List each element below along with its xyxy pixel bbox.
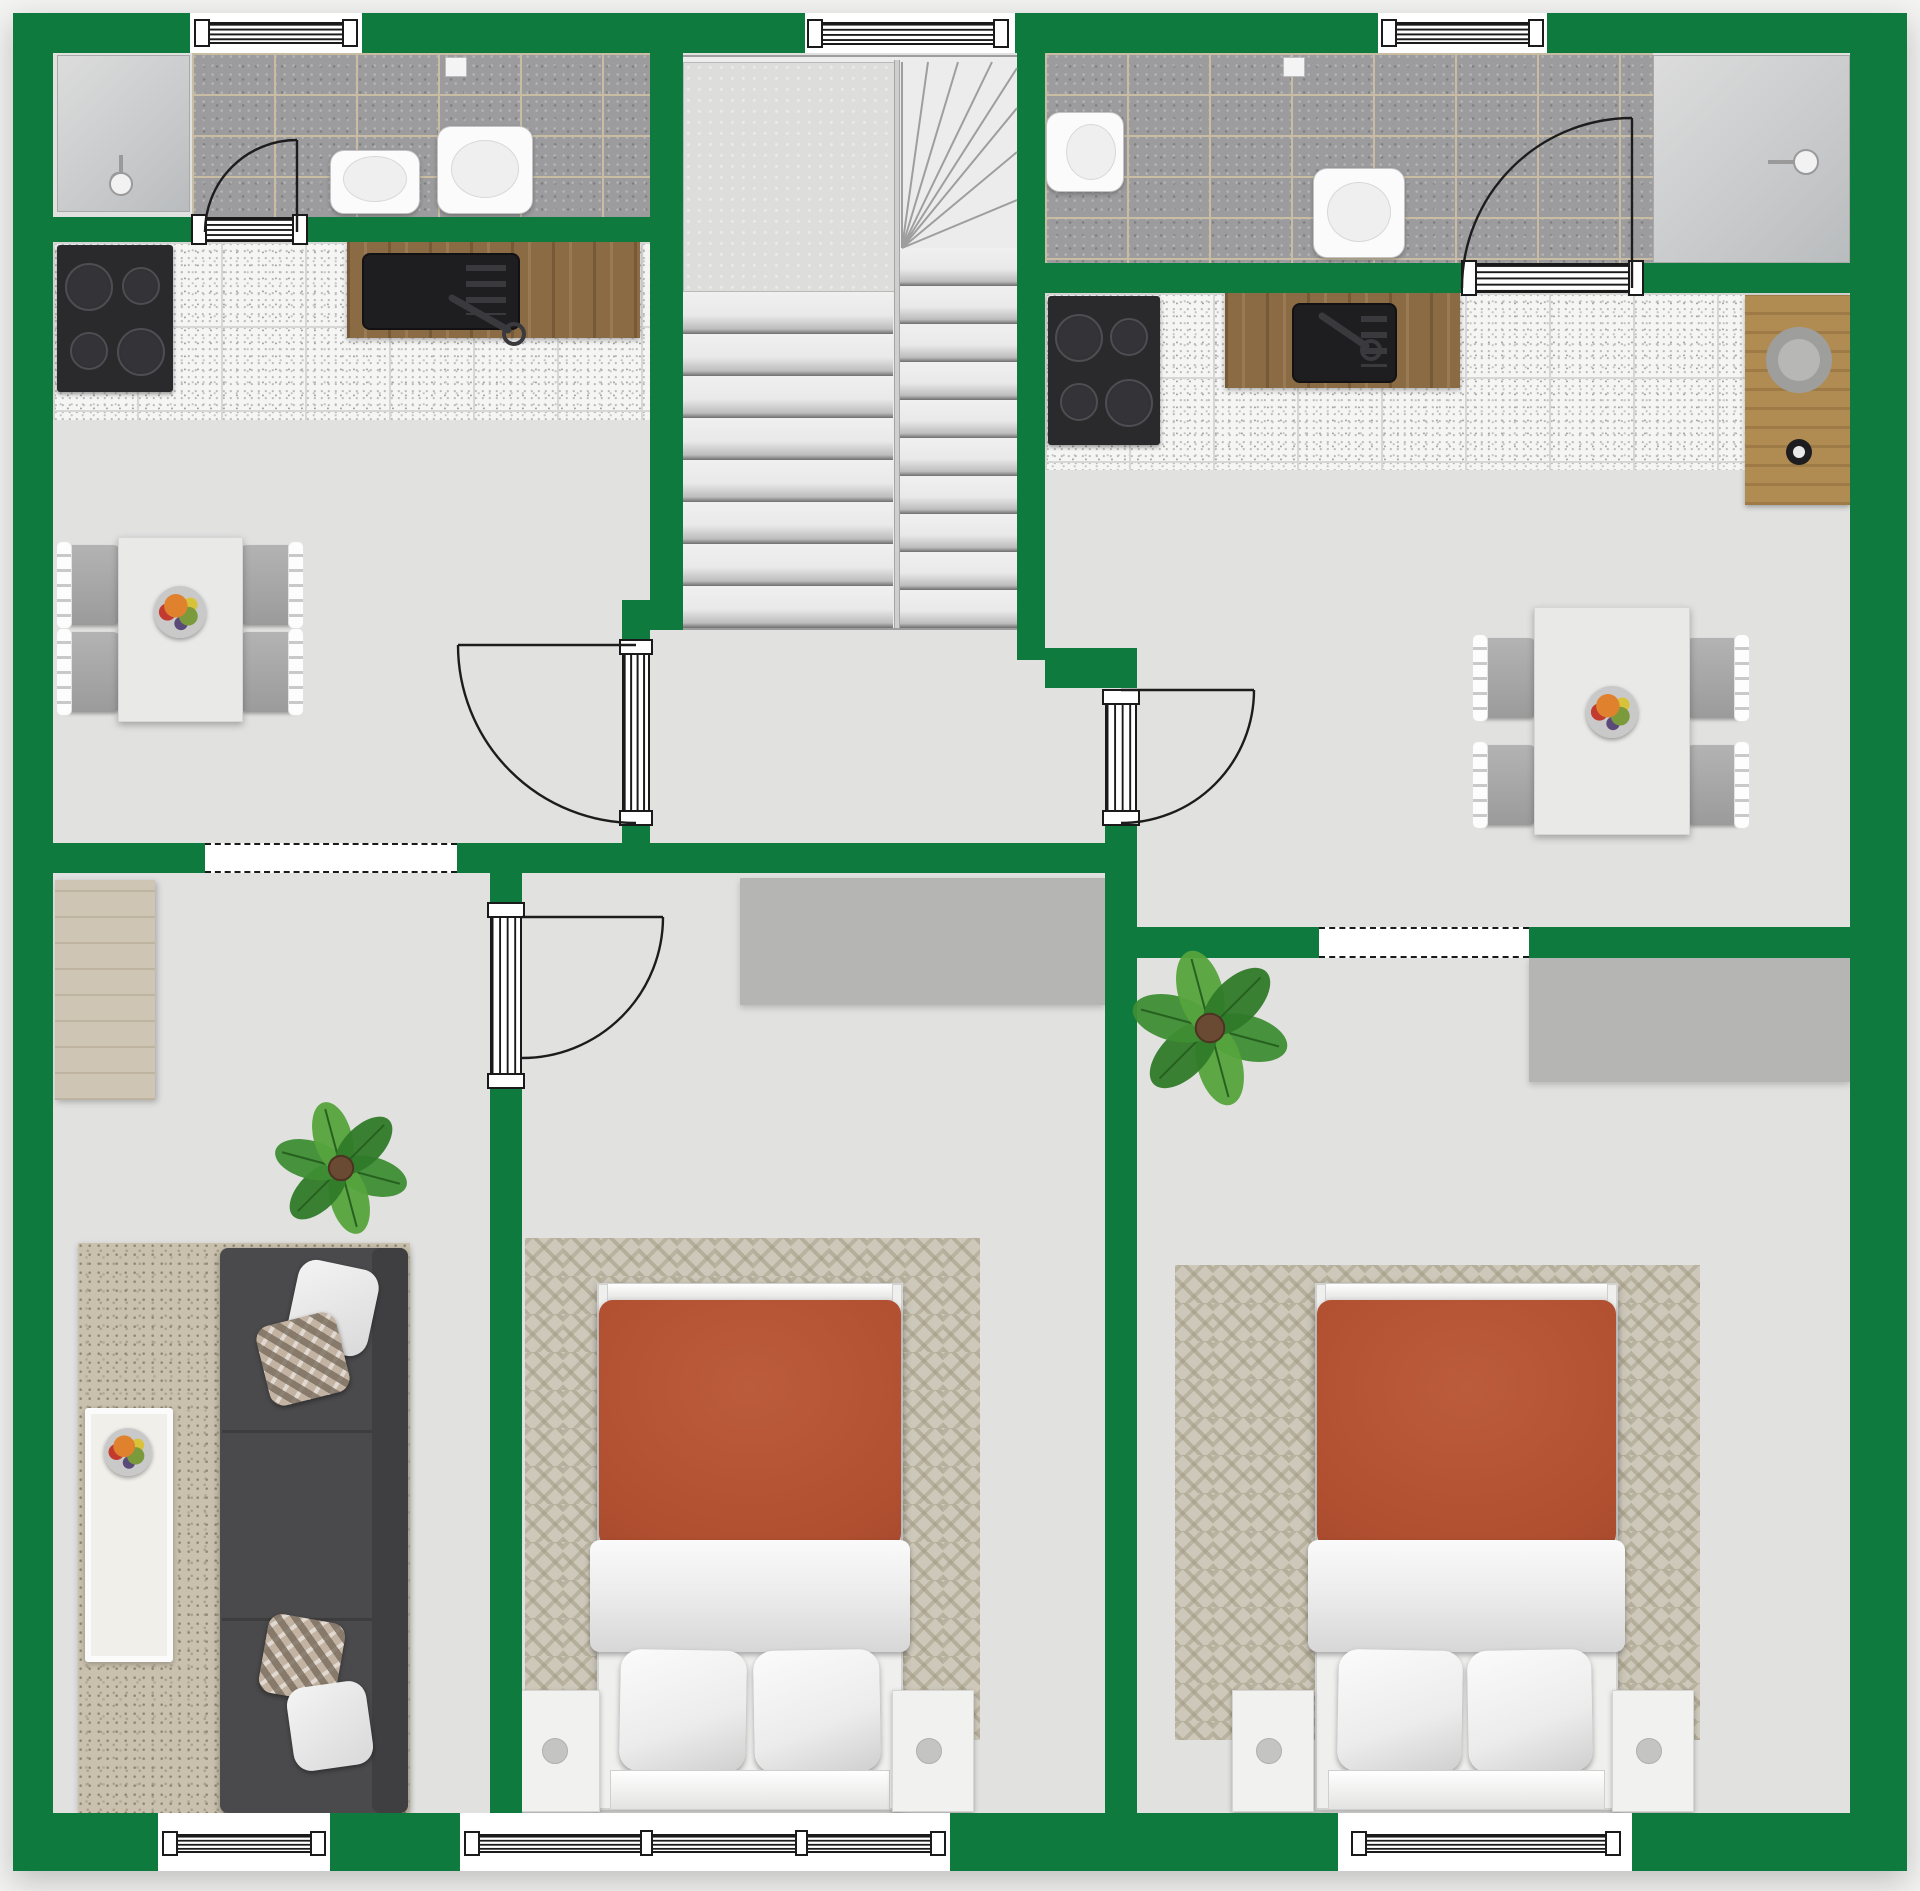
bathroom-left-tiles [192,53,650,217]
wall-stair-west [650,53,683,630]
wall-bath-left-b [307,217,657,242]
door-threshold-unit-left [622,640,650,825]
bed-pillow [753,1649,881,1773]
shower-right [1653,55,1850,263]
bed-pillow [1337,1649,1463,1773]
bed-foot-rail [607,1283,893,1301]
window-bottom-bedroom-right [1352,1834,1620,1853]
stair-tread [683,376,893,418]
bed-head-rail [610,1770,890,1810]
stair-tread [683,292,893,334]
chair [1686,745,1744,825]
bed-head-rail [1328,1770,1605,1810]
wall-hall-bottom-b [457,843,1105,873]
utility-ring-inner [1793,446,1805,458]
stair-tread [900,248,1017,286]
wall-hall-bottom-a [53,843,205,873]
chair [1478,638,1536,718]
shower-left [57,55,190,212]
wall-stair-east [1017,53,1045,660]
wall-stub-east [1045,648,1137,688]
sink-left-basin [451,140,519,198]
door-threshold-bedroom-center [490,903,522,1088]
chair [62,545,120,625]
sofa-backrest [372,1248,408,1813]
stair-tread [683,334,893,376]
window-bottom-bedroom-center [465,1834,945,1853]
wall-bath-right-a [1045,263,1462,293]
passage-dining-bedroom-right [1319,927,1529,958]
wall-bedroom-center-a [490,873,522,903]
sink-right-basin [1327,182,1391,242]
door-threshold-unit-right [1105,690,1137,825]
burner [1110,318,1148,356]
stair-tread [900,552,1017,590]
wall-bottom [13,1813,158,1871]
nightstand-knob [542,1738,568,1764]
chair [1686,638,1744,718]
stair-tread [900,362,1017,400]
burner [65,263,113,311]
wall-bottom [330,1813,460,1871]
floor-plan-canvas [0,0,1920,1891]
tp-holder-right [1283,57,1305,77]
rug-gray-bedroom-right [1529,958,1850,1082]
window-bottom-living [163,1834,325,1853]
wall-entry-left-b [622,825,650,843]
tp-holder-left [445,57,467,77]
stair-tread [900,514,1017,552]
stair-tread [683,418,893,460]
bed-pillow [619,1649,747,1773]
stair-tread [683,460,893,502]
stair-tread [900,438,1017,476]
bed-duvet [599,1300,901,1548]
bed-pillow [1467,1649,1593,1773]
wall-bath-right-b [1643,263,1850,293]
wall-bedroom-right-a [1137,927,1319,958]
fruit-bowl [1586,686,1638,738]
stair-tread [900,476,1017,514]
burner [1055,314,1103,362]
wall-bedroom-right-b [1529,927,1850,958]
bed-sheet [590,1540,910,1652]
nightstand-knob [1256,1738,1282,1764]
burner [117,328,165,376]
bed-sheet [1308,1540,1625,1652]
stair-tread [683,544,893,586]
window-mullion [640,1830,653,1856]
passage-dining-living-left [205,843,457,873]
door-threshold-bath-right [1462,263,1643,293]
wall-top [362,13,805,53]
bed-duvet [1317,1300,1616,1548]
chair [240,545,298,625]
nightstand-knob [916,1738,942,1764]
wall-unit-divider [1105,825,1137,1813]
wall-top [1015,13,1378,53]
stair-tread [683,586,893,628]
window-top-bath-left [195,22,357,44]
stair-tread [900,590,1017,628]
stair-landing [683,62,895,292]
nightstand-knob [1636,1738,1662,1764]
stair-tread [900,400,1017,438]
wall-entry-left-a [622,600,650,640]
wall-bedroom-center-b [490,1088,522,1813]
wall-right [1850,13,1907,1871]
burner [122,267,160,305]
chair [240,632,298,712]
wall-bath-left-a [53,217,192,242]
wall-left [13,13,53,1871]
sofa-seam [222,1430,372,1433]
rug-gray-bedroom-center [740,878,1105,1005]
sink-black-left [362,253,520,330]
stair-divider [894,60,900,628]
toilet-left-bowl [343,156,407,202]
sideboard [55,880,155,1100]
toilet-right-bowl [1066,124,1116,180]
door-threshold-bath-left [192,217,307,242]
window-mullion [795,1830,808,1856]
wall-bottom [1632,1813,1907,1871]
pillow [285,1679,376,1773]
bed-foot-rail [1325,1283,1608,1301]
stair-tread [900,286,1017,324]
utility-basin-inner [1778,339,1820,381]
fruit-bowl [104,1428,152,1476]
window-top-bath-right [1382,22,1543,44]
window-top-stairwell [808,22,1008,45]
stair-tread [900,324,1017,362]
fruit-bowl [154,586,206,638]
chair [1478,745,1536,825]
burner [1105,379,1153,427]
wall-bottom [950,1813,1338,1871]
stair-tread [683,502,893,544]
chair [62,632,120,712]
burner [1060,383,1098,421]
sink-black-right [1292,303,1397,383]
shower-left-drain [110,172,127,189]
burner [70,332,108,370]
